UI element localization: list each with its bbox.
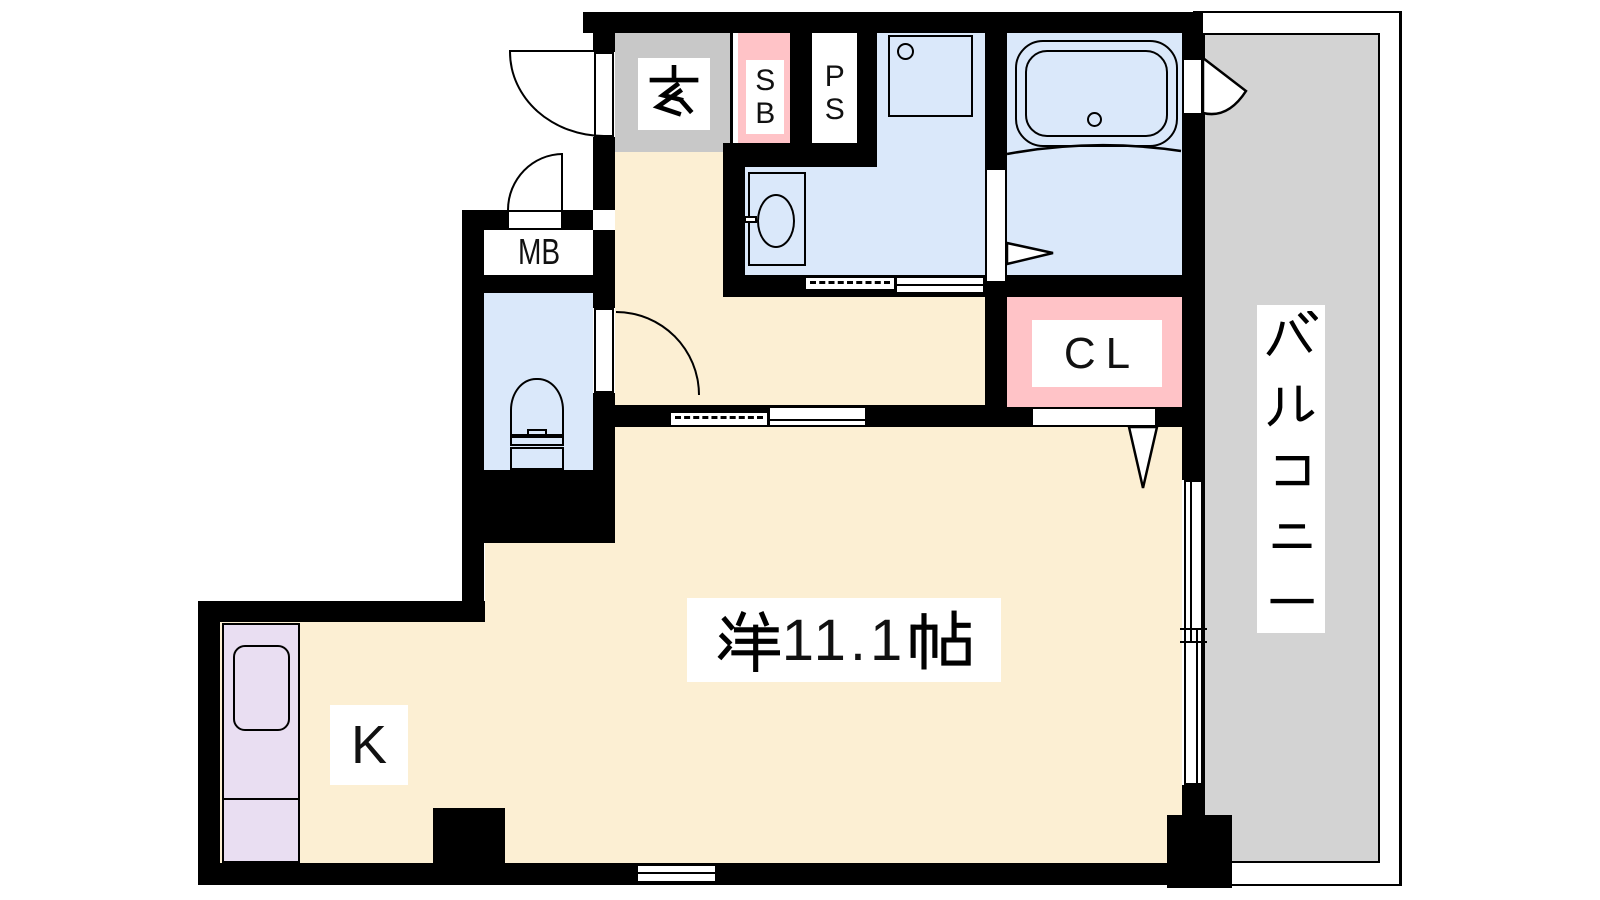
wall-jog-right <box>563 210 593 230</box>
wall-ps-right <box>857 33 877 143</box>
room-sliding-door-dashes <box>675 416 763 419</box>
pipe-space-label-text: PS <box>819 60 851 126</box>
katakana-ni-glyph <box>1264 508 1318 562</box>
kitchen-counter-divider <box>222 798 300 800</box>
balcony-sliding-window <box>1184 480 1203 785</box>
washroom-sliding-door-panel-line <box>897 284 983 286</box>
closet-door-gap <box>1033 407 1155 427</box>
kitchen-label: K <box>330 705 408 785</box>
wall-entry-left-a <box>593 12 615 52</box>
meter-box-label-text: MB <box>518 231 560 273</box>
toilet-seat-band <box>510 436 564 446</box>
wall-right-pillar <box>1182 785 1203 815</box>
entrance-door-arc <box>509 52 604 137</box>
wall-mb-right-a <box>593 230 615 308</box>
balcony-window-sash-b <box>1196 630 1198 783</box>
balcony-window-tick-b <box>1180 641 1207 643</box>
meter-box-door-leaf <box>507 210 563 230</box>
balcony-door-leaf <box>1182 58 1203 115</box>
bathroom-folding-door-slot <box>985 168 1007 283</box>
balcony-window-sash-a <box>1190 482 1192 642</box>
hall-floor-upper <box>615 152 723 297</box>
kanji-gen-glyph <box>645 65 703 123</box>
genkan-label <box>638 58 710 130</box>
shoe-box-label: SB <box>746 60 784 134</box>
toilet-tank <box>510 447 564 470</box>
wall-top <box>583 12 1203 33</box>
kanji-you-glyph <box>716 608 780 672</box>
washroom-sliding-door-dashes <box>810 281 890 284</box>
washbasin-bowl <box>757 194 795 248</box>
balcony-window-tick-a <box>1180 628 1207 630</box>
katakana-ru-glyph <box>1264 377 1318 431</box>
wall-kitchen-left <box>198 601 220 885</box>
wall-mb-right-b <box>593 393 615 470</box>
bathtub-drain <box>1087 112 1102 127</box>
wall-room-pillar <box>433 808 505 863</box>
wall-right-upper <box>1182 12 1203 58</box>
western-room-area-text: 11.1 <box>782 607 907 674</box>
wall-under-sb-ps <box>723 143 877 167</box>
kitchen-label-text: K <box>351 714 387 776</box>
closet-label: CL <box>1032 320 1162 387</box>
pipe-space-label: PS <box>813 50 856 136</box>
room-sliding-door-panel-line <box>770 419 865 421</box>
room-sliding-door-track <box>670 412 768 426</box>
shoe-box-label-text: SB <box>749 64 781 130</box>
wall-cl-left <box>985 295 1007 427</box>
wall-entry-left-b <box>593 137 615 210</box>
kitchen-sink <box>233 645 290 731</box>
meter-box-label: MB <box>490 232 588 272</box>
wall-toilet-below-block <box>484 470 615 543</box>
washing-machine-drain <box>897 43 914 60</box>
toilet-bowl <box>510 378 564 436</box>
katakana-ba-glyph <box>1264 311 1318 365</box>
wall-mb-bottom <box>484 275 593 293</box>
wall-bottom-right-block <box>1167 815 1232 888</box>
room-sliding-door-panel <box>768 406 867 427</box>
wall-washroom-bath-upper <box>985 33 1007 168</box>
wall-left-column <box>462 230 484 622</box>
katakana-ko-glyph <box>1264 442 1318 496</box>
western-room-floor-nook <box>485 543 615 622</box>
wall-left-horizontal <box>198 601 485 622</box>
wall-sb-ps-divider <box>790 33 812 143</box>
meter-box-door-arc <box>507 153 563 210</box>
western-room-label: 11.1 <box>687 598 1001 682</box>
balcony-label <box>1257 305 1325 633</box>
floor-plan: SB PS MB CL K 11.1 <box>0 0 1600 900</box>
wall-right-long <box>1182 115 1203 480</box>
washbasin-tap <box>744 216 757 223</box>
toilet-door-leaf <box>594 308 614 393</box>
katakana-chouon-glyph <box>1264 573 1318 627</box>
wall-jog-left <box>462 210 507 230</box>
wall-cl-top <box>1007 275 1182 297</box>
small-window-line <box>638 872 715 874</box>
closet-label-text: CL <box>1064 329 1140 379</box>
kanji-jou-glyph <box>908 608 972 672</box>
